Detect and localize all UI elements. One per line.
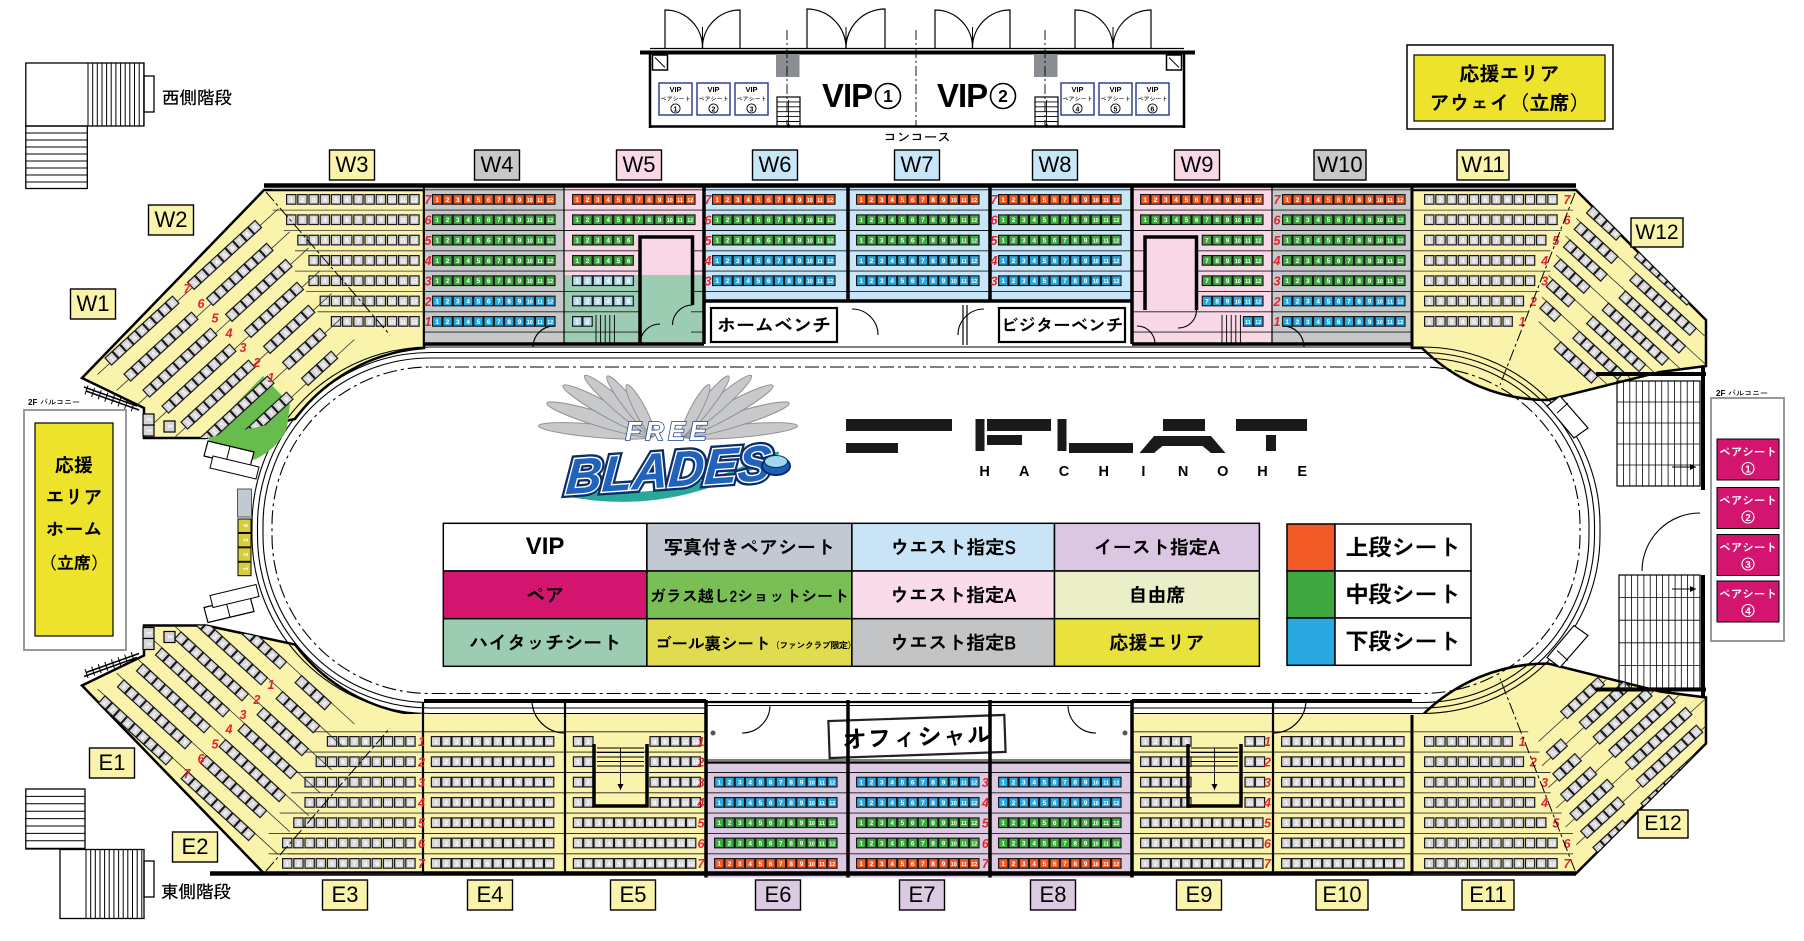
svg-text:10: 10 [1093, 279, 1099, 285]
svg-text:8: 8 [506, 841, 510, 848]
svg-text:3: 3 [1306, 319, 1310, 326]
svg-text:12: 12 [687, 198, 693, 204]
svg-text:9: 9 [1367, 841, 1371, 848]
svg-text:7: 7 [1063, 820, 1067, 827]
svg-text:4: 4 [465, 800, 469, 807]
svg-text:9: 9 [942, 258, 946, 265]
svg-text:9: 9 [1368, 238, 1372, 245]
svg-text:9: 9 [1084, 820, 1088, 827]
svg-text:6: 6 [341, 759, 345, 766]
svg-text:11: 11 [1538, 862, 1544, 868]
svg-text:2: 2 [243, 552, 250, 556]
svg-text:10: 10 [526, 821, 532, 827]
svg-text:6: 6 [341, 739, 345, 746]
svg-text:8: 8 [507, 319, 511, 326]
svg-text:4: 4 [1315, 759, 1319, 766]
svg-text:10: 10 [385, 842, 391, 848]
svg-text:5: 5 [1043, 278, 1047, 285]
svg-text:2F: 2F [28, 398, 37, 407]
svg-text:1: 1 [1427, 238, 1431, 245]
svg-text:3: 3 [1022, 197, 1026, 204]
svg-text:12: 12 [1396, 740, 1402, 746]
svg-text:4: 4 [606, 217, 610, 224]
svg-text:10: 10 [527, 239, 533, 245]
svg-text:2: 2 [1439, 759, 1443, 766]
svg-text:4: 4 [465, 820, 469, 827]
svg-text:10: 10 [1527, 239, 1533, 245]
svg-text:9: 9 [1517, 820, 1521, 827]
svg-text:12: 12 [547, 300, 553, 306]
svg-text:7: 7 [1205, 217, 1209, 224]
svg-text:11: 11 [536, 760, 542, 766]
svg-text:2: 2 [1012, 217, 1016, 224]
svg-text:7: 7 [779, 820, 783, 827]
svg-text:8: 8 [1506, 319, 1510, 326]
svg-text:11: 11 [817, 198, 823, 204]
svg-text:8: 8 [931, 820, 935, 827]
svg-text:4: 4 [243, 523, 250, 527]
svg-text:2: 2 [1439, 780, 1443, 787]
svg-text:5: 5 [1327, 217, 1331, 224]
svg-text:6: 6 [769, 841, 773, 848]
svg-text:12: 12 [546, 781, 552, 787]
svg-text:6: 6 [418, 837, 426, 851]
svg-text:7: 7 [1495, 258, 1499, 265]
svg-text:4: 4 [1316, 278, 1320, 285]
svg-text:4: 4 [465, 739, 469, 746]
svg-text:1: 1 [1427, 319, 1431, 326]
svg-text:8: 8 [1357, 299, 1361, 306]
svg-text:1: 1 [1143, 217, 1147, 224]
svg-text:4: 4 [1174, 217, 1178, 224]
svg-text:12: 12 [546, 862, 552, 868]
svg-text:E3: E3 [332, 882, 359, 907]
svg-text:8: 8 [364, 800, 368, 807]
svg-text:3: 3 [1306, 299, 1310, 306]
svg-text:4: 4 [1461, 841, 1465, 848]
svg-text:8: 8 [1357, 319, 1361, 326]
svg-text:10: 10 [527, 198, 533, 204]
svg-text:9: 9 [942, 820, 946, 827]
svg-text:3: 3 [738, 820, 742, 827]
svg-text:5: 5 [1472, 217, 1476, 224]
svg-text:2: 2 [870, 861, 874, 868]
svg-text:5: 5 [1185, 217, 1189, 224]
svg-text:7: 7 [1274, 193, 1282, 207]
svg-text:5: 5 [617, 197, 621, 204]
svg-text:9: 9 [379, 197, 383, 204]
svg-text:12: 12 [407, 781, 413, 787]
svg-text:12: 12 [829, 821, 835, 827]
svg-text:12: 12 [1396, 781, 1402, 787]
svg-text:W4: W4 [481, 152, 514, 177]
svg-text:11: 11 [396, 740, 402, 746]
svg-text:12: 12 [827, 239, 833, 245]
svg-text:8: 8 [1073, 841, 1077, 848]
svg-text:12: 12 [1397, 218, 1403, 224]
svg-text:2: 2 [301, 217, 305, 224]
svg-text:5: 5 [1264, 816, 1272, 830]
svg-text:5: 5 [1472, 800, 1476, 807]
svg-text:11: 11 [1386, 760, 1392, 766]
svg-text:1: 1 [289, 197, 293, 204]
svg-text:H: H [1098, 464, 1108, 480]
svg-text:1: 1 [859, 800, 863, 807]
svg-text:4: 4 [465, 780, 469, 787]
svg-text:5: 5 [901, 780, 905, 787]
svg-text:12: 12 [1257, 781, 1263, 787]
svg-text:3: 3 [168, 635, 175, 639]
svg-text:2: 2 [870, 217, 874, 224]
svg-text:1: 1 [1001, 861, 1005, 868]
svg-text:1: 1 [1427, 800, 1431, 807]
svg-text:1: 1 [1001, 800, 1005, 807]
svg-text:2: 2 [870, 238, 874, 245]
svg-text:1: 1 [1284, 759, 1288, 766]
svg-text:2: 2 [1439, 238, 1443, 245]
svg-text:6: 6 [1337, 258, 1341, 265]
svg-text:1: 1 [698, 735, 705, 749]
svg-text:6: 6 [1337, 319, 1341, 326]
svg-text:5: 5 [901, 861, 905, 868]
svg-text:10: 10 [1235, 862, 1241, 868]
svg-text:4: 4 [748, 861, 752, 868]
svg-text:9: 9 [659, 861, 663, 868]
svg-text:9: 9 [942, 238, 946, 245]
svg-text:1: 1 [715, 258, 719, 265]
svg-text:4: 4 [890, 800, 894, 807]
svg-text:11: 11 [817, 279, 823, 285]
svg-text:12: 12 [1397, 198, 1403, 204]
svg-text:1: 1 [717, 780, 721, 787]
svg-text:2: 2 [726, 238, 730, 245]
svg-text:5: 5 [1472, 861, 1476, 868]
svg-text:7: 7 [1660, 787, 1668, 795]
svg-text:8: 8 [1506, 238, 1510, 245]
svg-text:2: 2 [586, 197, 590, 204]
svg-text:7: 7 [637, 197, 641, 204]
svg-text:11: 11 [1103, 279, 1109, 285]
svg-text:1: 1 [1001, 217, 1005, 224]
svg-text:7: 7 [1063, 861, 1067, 868]
svg-text:7: 7 [779, 841, 783, 848]
svg-text:10: 10 [389, 239, 395, 245]
svg-text:I: I [1141, 464, 1145, 480]
svg-text:12: 12 [827, 259, 833, 265]
svg-text:4: 4 [1174, 841, 1178, 848]
svg-text:8: 8 [1356, 800, 1360, 807]
svg-text:8: 8 [1357, 258, 1361, 265]
svg-text:12: 12 [1257, 740, 1263, 746]
svg-text:4: 4 [323, 217, 327, 224]
svg-text:4: 4 [1461, 278, 1465, 285]
svg-text:9: 9 [1368, 217, 1372, 224]
svg-text:5: 5 [330, 739, 334, 746]
svg-text:2: 2 [446, 278, 450, 285]
svg-text:12: 12 [1255, 198, 1261, 204]
svg-text:12: 12 [1255, 259, 1261, 265]
svg-text:7: 7 [497, 197, 501, 204]
svg-text:11: 11 [537, 198, 543, 204]
svg-text:11: 11 [961, 862, 967, 868]
svg-text:5: 5 [1185, 841, 1189, 848]
svg-text:3: 3 [308, 820, 312, 827]
svg-text:7: 7 [1495, 820, 1499, 827]
svg-text:9: 9 [379, 278, 383, 285]
svg-text:7: 7 [1347, 278, 1351, 285]
svg-text:3: 3 [1164, 861, 1168, 868]
svg-text:4: 4 [748, 780, 752, 787]
svg-text:10: 10 [672, 740, 678, 746]
svg-text:10: 10 [668, 842, 674, 848]
svg-text:7: 7 [357, 238, 361, 245]
svg-text:12: 12 [1113, 279, 1119, 285]
svg-text:12: 12 [1550, 218, 1556, 224]
svg-text:7: 7 [496, 861, 500, 868]
svg-text:8: 8 [364, 780, 368, 787]
svg-text:N: N [1178, 464, 1188, 480]
svg-text:10: 10 [1093, 801, 1099, 807]
svg-text:7: 7 [1346, 861, 1350, 868]
svg-text:11: 11 [400, 218, 406, 224]
svg-text:7: 7 [921, 217, 925, 224]
svg-text:2: 2 [870, 800, 874, 807]
svg-text:3: 3 [596, 299, 600, 306]
svg-text:9: 9 [798, 217, 802, 224]
svg-text:W2: W2 [155, 207, 188, 232]
svg-text:7: 7 [1564, 193, 1572, 207]
svg-text:3: 3 [1450, 238, 1454, 245]
svg-text:10: 10 [1093, 239, 1099, 245]
svg-text:11: 11 [1247, 740, 1253, 746]
svg-text:4: 4 [890, 197, 894, 204]
svg-text:6: 6 [769, 861, 773, 868]
svg-text:7: 7 [777, 258, 781, 265]
svg-text:4: 4 [890, 238, 894, 245]
svg-text:9: 9 [1367, 780, 1371, 787]
svg-text:VIP: VIP [937, 77, 987, 114]
svg-text:4: 4 [1461, 861, 1465, 868]
svg-text:4: 4 [466, 258, 470, 265]
svg-text:10: 10 [1377, 239, 1383, 245]
svg-text:5: 5 [1472, 319, 1476, 326]
svg-text:10: 10 [668, 862, 674, 868]
svg-text:3: 3 [456, 217, 460, 224]
svg-text:8: 8 [507, 197, 511, 204]
svg-text:11: 11 [1387, 198, 1393, 204]
svg-text:4: 4 [746, 258, 750, 265]
svg-text:8: 8 [1356, 820, 1360, 827]
svg-text:12: 12 [1255, 821, 1261, 827]
svg-text:11: 11 [819, 821, 825, 827]
svg-text:5: 5 [330, 841, 334, 848]
svg-text:1: 1 [1143, 197, 1147, 204]
svg-text:9: 9 [517, 841, 521, 848]
svg-text:1: 1 [1427, 217, 1431, 224]
svg-text:5: 5 [1043, 238, 1047, 245]
svg-text:12: 12 [1396, 760, 1402, 766]
svg-text:10: 10 [809, 862, 815, 868]
svg-text:8: 8 [931, 841, 935, 848]
svg-text:3: 3 [455, 861, 459, 868]
svg-text:4: 4 [1174, 820, 1178, 827]
svg-text:8: 8 [1506, 820, 1510, 827]
svg-text:1: 1 [575, 319, 579, 326]
svg-text:4: 4 [319, 820, 323, 827]
svg-text:4: 4 [1461, 299, 1465, 306]
svg-text:8: 8 [368, 319, 372, 326]
svg-text:8: 8 [653, 780, 657, 787]
svg-text:9: 9 [517, 780, 521, 787]
svg-text:1: 1 [859, 278, 863, 285]
svg-text:11: 11 [1103, 198, 1109, 204]
svg-text:7: 7 [921, 238, 925, 245]
svg-text:8: 8 [1215, 197, 1219, 204]
svg-text:9: 9 [1367, 800, 1371, 807]
svg-text:H: H [979, 464, 989, 480]
svg-text:2: 2 [446, 238, 450, 245]
svg-text:12: 12 [1255, 239, 1261, 245]
svg-text:3: 3 [455, 820, 459, 827]
svg-text:1: 1 [674, 106, 678, 113]
svg-text:5: 5 [901, 217, 905, 224]
svg-text:3: 3 [596, 258, 600, 265]
svg-text:11: 11 [677, 198, 683, 204]
svg-text:9: 9 [1226, 299, 1230, 306]
svg-text:6: 6 [769, 820, 773, 827]
svg-text:E: E [1297, 464, 1307, 480]
svg-text:7: 7 [1347, 217, 1351, 224]
svg-text:4: 4 [890, 841, 894, 848]
svg-text:12: 12 [1257, 801, 1263, 807]
svg-text:4: 4 [746, 217, 750, 224]
svg-text:11: 11 [1386, 781, 1392, 787]
svg-text:10: 10 [951, 198, 957, 204]
svg-text:10: 10 [527, 279, 533, 285]
svg-text:3: 3 [1022, 780, 1026, 787]
svg-text:1: 1 [425, 315, 432, 329]
svg-text:11: 11 [1103, 781, 1109, 787]
svg-text:8: 8 [368, 258, 372, 265]
svg-text:12: 12 [1113, 842, 1119, 848]
svg-text:9: 9 [1368, 299, 1372, 306]
svg-text:4: 4 [238, 624, 246, 632]
svg-text:9: 9 [1517, 800, 1521, 807]
svg-text:5: 5 [1326, 759, 1330, 766]
svg-text:W7: W7 [901, 152, 934, 177]
svg-text:1: 1 [1274, 315, 1281, 329]
svg-text:8: 8 [1506, 780, 1510, 787]
svg-text:BLADES: BLADES [564, 435, 773, 505]
svg-text:10: 10 [951, 781, 957, 787]
svg-text:7: 7 [1205, 278, 1209, 285]
svg-text:4: 4 [1032, 238, 1036, 245]
svg-text:9: 9 [663, 780, 667, 787]
svg-text:1: 1 [1001, 841, 1005, 848]
svg-text:10: 10 [1235, 239, 1241, 245]
svg-text:8: 8 [506, 739, 510, 746]
svg-text:VIP: VIP [707, 85, 719, 94]
svg-text:2: 2 [1439, 299, 1443, 306]
svg-text:11: 11 [1103, 239, 1109, 245]
svg-text:9: 9 [1517, 278, 1521, 285]
svg-text:5: 5 [705, 234, 713, 248]
svg-text:6: 6 [345, 197, 349, 204]
svg-text:12: 12 [1397, 320, 1403, 326]
svg-text:4: 4 [1315, 739, 1319, 746]
svg-text:4: 4 [1273, 254, 1281, 268]
svg-text:6: 6 [1483, 299, 1487, 306]
svg-text:11: 11 [537, 300, 543, 306]
svg-text:10: 10 [527, 300, 533, 306]
svg-text:3: 3 [1022, 861, 1026, 868]
svg-text:6: 6 [705, 213, 713, 227]
svg-text:3: 3 [736, 258, 740, 265]
svg-text:7: 7 [184, 767, 192, 781]
svg-text:3: 3 [1306, 197, 1310, 204]
svg-text:8: 8 [789, 820, 793, 827]
svg-text:11: 11 [537, 320, 543, 326]
svg-text:2: 2 [870, 197, 874, 204]
svg-text:2: 2 [1154, 780, 1158, 787]
svg-text:8: 8 [1506, 299, 1510, 306]
svg-text:C: C [1059, 464, 1070, 480]
svg-text:10: 10 [527, 259, 533, 265]
svg-text:4: 4 [704, 254, 712, 268]
svg-text:3: 3 [1022, 841, 1026, 848]
svg-text:5: 5 [1472, 299, 1476, 306]
svg-text:10: 10 [1376, 862, 1382, 868]
svg-text:11: 11 [683, 740, 689, 746]
svg-text:12: 12 [411, 198, 417, 204]
svg-text:1: 1 [1001, 278, 1005, 285]
svg-text:6: 6 [345, 217, 349, 224]
svg-text:4: 4 [466, 217, 470, 224]
svg-text:6: 6 [767, 278, 771, 285]
svg-text:3: 3 [880, 258, 884, 265]
svg-text:9: 9 [942, 278, 946, 285]
svg-text:4: 4 [890, 217, 894, 224]
svg-text:VIP: VIP [1109, 85, 1121, 94]
svg-text:1: 1 [859, 841, 863, 848]
svg-text:7: 7 [184, 282, 192, 296]
svg-text:11: 11 [1245, 198, 1251, 204]
svg-text:1: 1 [1284, 820, 1288, 827]
svg-text:4: 4 [1032, 197, 1036, 204]
svg-text:2: 2 [1439, 319, 1443, 326]
svg-text:12: 12 [407, 760, 413, 766]
svg-text:5: 5 [418, 816, 426, 830]
svg-text:2: 2 [446, 217, 450, 224]
svg-text:5: 5 [475, 780, 479, 787]
svg-text:4: 4 [606, 299, 610, 306]
svg-text:7: 7 [921, 780, 925, 787]
svg-text:1: 1 [717, 800, 721, 807]
svg-text:3: 3 [1164, 820, 1168, 827]
svg-text:1: 1 [1001, 238, 1005, 245]
svg-text:2: 2 [1439, 820, 1443, 827]
svg-text:9: 9 [1084, 841, 1088, 848]
svg-text:8: 8 [1506, 278, 1510, 285]
svg-text:11: 11 [961, 239, 967, 245]
svg-text:10: 10 [1527, 198, 1533, 204]
svg-text:10: 10 [1093, 842, 1099, 848]
svg-text:9: 9 [1367, 861, 1371, 868]
svg-text:2: 2 [297, 861, 301, 868]
svg-text:10: 10 [809, 781, 815, 787]
svg-text:12: 12 [1396, 842, 1402, 848]
svg-text:4: 4 [890, 820, 894, 827]
